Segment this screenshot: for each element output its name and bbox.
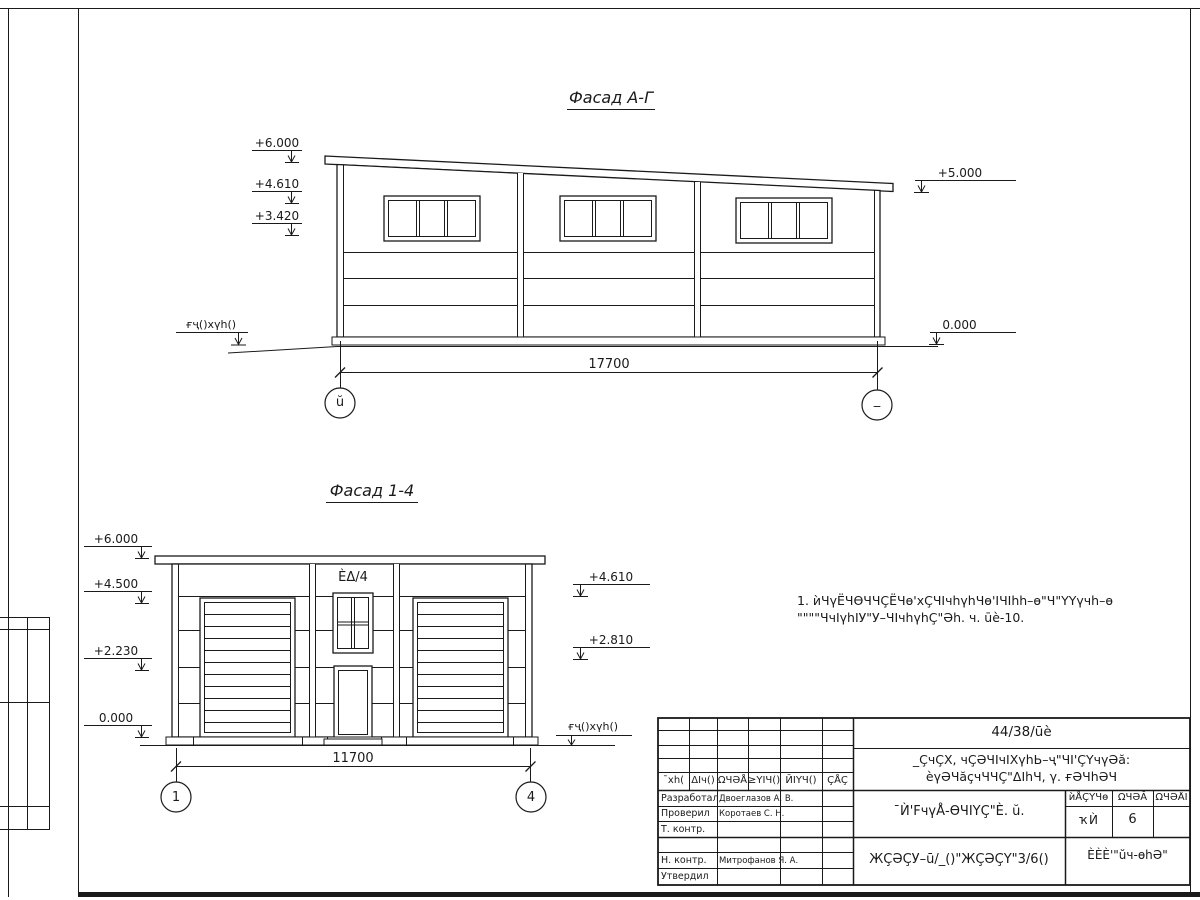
titleblock-col-header: ΔIч()	[689, 775, 717, 786]
elevation-mark-symbol	[914, 181, 1016, 193]
elevation-label: +4.500	[84, 577, 148, 591]
door-threshold	[324, 739, 382, 745]
axis-number: 1	[162, 790, 190, 805]
titleblock-col-header: ЙІҮЧ()	[780, 775, 822, 786]
elevation-label: +6.000	[84, 532, 148, 546]
elevation-label: +4.610	[578, 570, 644, 584]
elevation-mark-symbol	[84, 592, 152, 604]
elevation-mark-symbol	[84, 659, 152, 671]
titleblock-sheetno-header: ΩЧӘĂ	[1112, 792, 1153, 803]
titleblock-role: Утвердил	[661, 871, 709, 882]
facade-14-title: Фасад 1-4	[326, 481, 418, 503]
ground-level-label: ғҷ()хүh()	[176, 318, 246, 331]
titleblock-role: Т. контр.	[661, 824, 705, 835]
titleblock-role: Разработал	[661, 793, 719, 804]
axis-number: 4	[517, 790, 545, 805]
ribbon-window-2	[560, 196, 656, 241]
titleblock-stage-header: ѝÅÇҮЧѳ	[1065, 792, 1112, 803]
ground-line	[228, 347, 938, 354]
axis-letter: ŭ	[326, 395, 354, 410]
titleblock-role: Н. контр.	[661, 855, 707, 866]
titleblock-name: Митрофанов Я. А.	[719, 856, 798, 866]
elevation-mark-symbol	[252, 224, 302, 236]
left-edge-stamp	[0, 618, 50, 830]
note-line-1: 1. ѝЧүЁЧѲЧЧÇЁЧѳ'хÇЧIчhүhЧѳ'IЧIhh–ѳ"Ч"ҮҮү…	[797, 592, 1113, 609]
sectional-door-right	[413, 598, 508, 737]
facade-ag-drawing	[176, 151, 1016, 421]
titleblock-project-line1: _ÇчÇХ, чÇӘЧIчIХүhЬ–ҷ"ЧI'ÇҮчүӘă:	[853, 752, 1190, 767]
titleblock-name: Двоеглазов А. В.	[719, 794, 793, 804]
wall	[337, 165, 880, 338]
elevation-mark-symbol	[252, 192, 302, 204]
facade-ag-title: Фасад А-Г	[567, 88, 655, 110]
elevation-mark-symbol	[84, 547, 152, 559]
elevation-label: 0.000	[932, 318, 987, 332]
titleblock-name: Коротаев С. Н.	[719, 809, 784, 819]
titleblock-company: ÈÈÈ'"ŭч-ѳhӘ"	[1065, 848, 1190, 862]
elevation-mark-symbol	[573, 585, 650, 597]
elevation-mark-symbol	[252, 151, 302, 163]
titleblock-stage-value: ҡЍ	[1065, 813, 1112, 827]
titleblock-doc-number: 44/38/ūè	[853, 724, 1190, 740]
titleblock-col-header: ¯хh(	[658, 775, 689, 786]
elevation-mark-symbol	[84, 726, 152, 738]
axis-letter: _	[863, 393, 891, 408]
ground-level-label: ғҷ()хүh()	[556, 720, 630, 733]
titleblock-sheet-title: ¯Ѝ'FчүÅ-ѲЧIҮÇ"È. ŭ.	[853, 804, 1065, 819]
note-line-2: """"ЧчIүhIУ"У–ЧIчhүhÇ"Әh. ч. ūè-10.	[797, 609, 1113, 626]
dimension-label: 11700	[323, 751, 383, 766]
elevation-label: +4.610	[252, 177, 302, 191]
dimension-label: 17700	[579, 357, 639, 372]
roof-slab	[155, 556, 545, 564]
centre-door	[334, 666, 372, 739]
ribbon-window-1	[384, 196, 480, 241]
titleblock-col-header: ΩЧӘÅ	[717, 775, 748, 786]
titleblock-doc-code: ЖÇӘÇУ–ū/_()"ЖÇӘÇҮ"3/6()	[853, 852, 1065, 867]
drawing-sheet: Фасад А-Г +6.000 +4.610 +3.420 +5.000 0.…	[0, 0, 1200, 900]
elevation-label: +2.810	[578, 633, 644, 647]
centre-window	[333, 593, 373, 653]
ribbon-window-3	[736, 198, 832, 243]
general-note: 1. ѝЧүЁЧѲЧЧÇЁЧѳ'хÇЧIчhүhЧѳ'IЧIhh–ѳ"Ч"ҮҮү…	[797, 592, 1113, 626]
titleblock-sheetno-value: 6	[1112, 812, 1153, 827]
elevation-label: 0.000	[84, 711, 148, 725]
elevation-label: +5.000	[930, 166, 990, 180]
facade-14-drawing	[84, 547, 650, 813]
titleblock-col-header: ÇÅÇ	[822, 775, 853, 786]
sectional-door-left	[200, 598, 295, 737]
elevation-label: +2.230	[84, 644, 148, 658]
titleblock-project-line2: èүӘЧăçчЧЧÇ"ΔIhЧ, γ. ғӘЧhӘЧ	[853, 769, 1190, 784]
titleblock-col-header: ≥ҮІЧ()	[748, 775, 780, 786]
elevation-mark-symbol	[929, 333, 1016, 345]
elevation-mark-symbol	[573, 648, 650, 660]
elevation-label: +3.420	[252, 209, 302, 223]
titleblock-role: Проверил	[661, 808, 710, 819]
titleblock-sheets-header: ΩЧӘÅI	[1153, 792, 1190, 803]
ground-mark-symbol	[556, 736, 632, 746]
elevation-label: +6.000	[252, 136, 302, 150]
ground-mark-symbol	[176, 333, 248, 346]
window-tag-label: ÈΔ/4	[326, 570, 380, 585]
